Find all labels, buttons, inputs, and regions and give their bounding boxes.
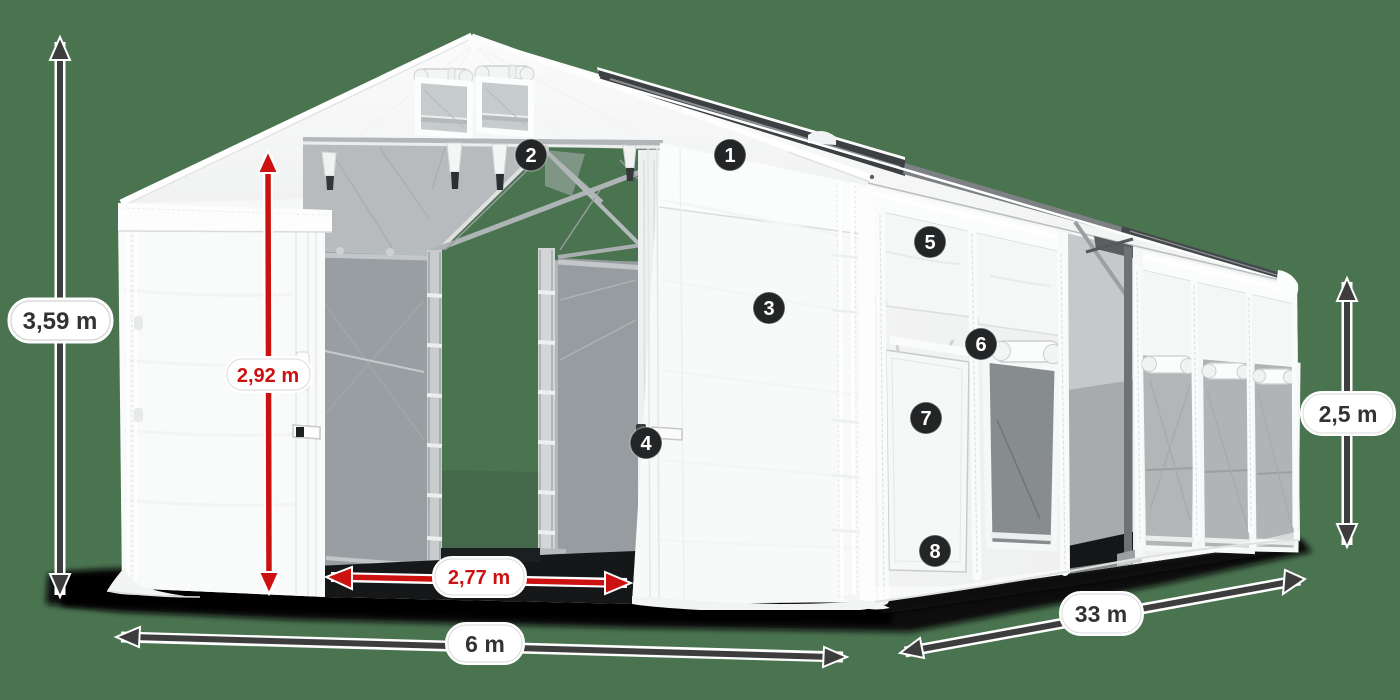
svg-text:2,77 m: 2,77 m	[448, 567, 510, 589]
svg-text:3,59 m: 3,59 m	[23, 308, 98, 335]
svg-text:5: 5	[924, 232, 935, 254]
svg-text:2,92 m: 2,92 m	[237, 365, 299, 387]
svg-text:4: 4	[640, 433, 652, 455]
svg-text:2: 2	[525, 145, 536, 167]
svg-text:6 m: 6 m	[465, 631, 505, 657]
svg-text:7: 7	[920, 408, 931, 430]
svg-text:3: 3	[763, 298, 774, 320]
svg-text:6: 6	[975, 334, 986, 356]
svg-text:8: 8	[929, 541, 940, 563]
svg-text:1: 1	[724, 145, 735, 167]
svg-text:33 m: 33 m	[1075, 601, 1127, 627]
svg-text:2,5 m: 2,5 m	[1319, 401, 1378, 427]
